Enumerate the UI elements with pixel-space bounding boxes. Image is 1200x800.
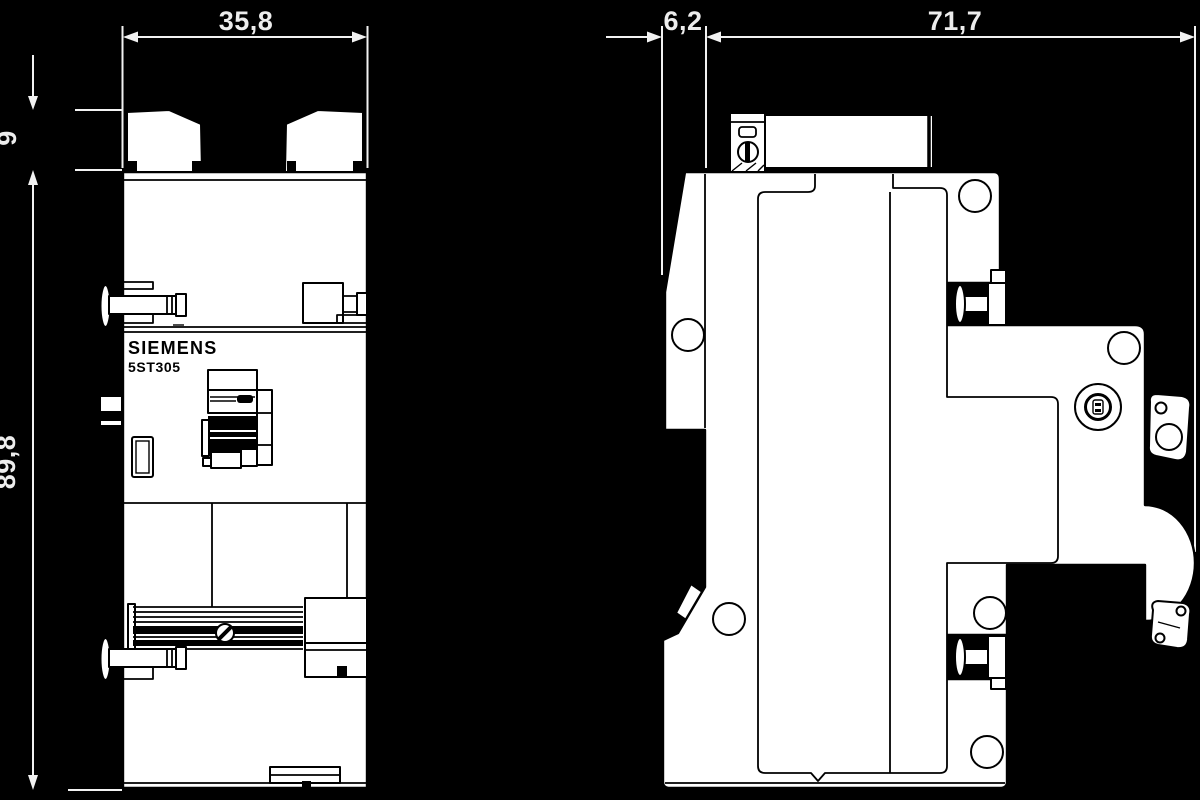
top-clip-right <box>285 110 363 172</box>
rail-spring-block <box>305 598 367 643</box>
arrowhead-left <box>706 32 721 43</box>
latch-upper <box>1149 394 1190 460</box>
arrowhead-right <box>647 32 662 43</box>
top-clip-left <box>127 110 202 172</box>
left-tab-thin <box>100 420 122 426</box>
rivet <box>672 319 704 351</box>
arrowhead-right <box>1180 32 1195 43</box>
dimensional-drawing: 35,8 9 89,8 6,2 71,7 <box>0 0 1200 800</box>
rivet <box>971 736 1003 768</box>
depth-label: 71,7 <box>928 6 983 36</box>
rivet <box>713 603 745 635</box>
latch-lower <box>1151 601 1190 648</box>
arrowhead-right <box>352 32 367 43</box>
clip-height-label: 9 <box>0 130 22 146</box>
din-cap <box>730 113 765 172</box>
arrowhead-up <box>28 170 38 185</box>
front-body <box>123 172 367 788</box>
pin-head <box>955 638 965 676</box>
top-strip <box>765 115 933 168</box>
rail-offset-label: 6,2 <box>663 6 702 36</box>
front-width-label: 35,8 <box>219 6 274 36</box>
front-view: SIEMENS 5ST305 <box>100 110 367 788</box>
side-body <box>663 172 1195 788</box>
indicator-window <box>132 437 153 477</box>
brand-label: SIEMENS <box>128 338 217 358</box>
pin-head <box>955 285 965 323</box>
model-label: 5ST305 <box>128 359 181 375</box>
left-tab <box>100 396 122 412</box>
drawing-canvas: 35,8 9 89,8 6,2 71,7 <box>0 0 1200 800</box>
side-view <box>663 113 1195 788</box>
dimension-total-height: 89,8 <box>0 185 122 790</box>
arrowhead-left <box>123 32 138 43</box>
dimension-clip-height: 9 <box>0 55 122 185</box>
total-height-label: 89,8 <box>0 435 21 490</box>
arrowhead-down <box>28 96 38 110</box>
spindle-hub <box>1075 384 1121 430</box>
rivet <box>959 180 991 212</box>
rivet <box>1108 332 1140 364</box>
arrowhead-down <box>28 775 38 790</box>
rivet <box>974 597 1006 629</box>
